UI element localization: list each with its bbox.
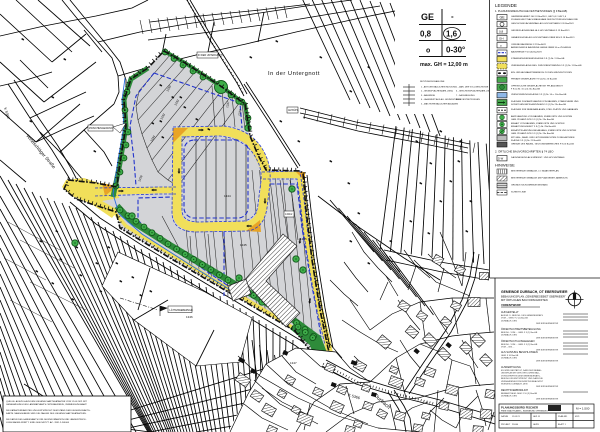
svg-text:In der Untergnott: In der Untergnott	[268, 71, 320, 77]
svg-text:PLAN-NR.: PLAN-NR.	[558, 415, 568, 418]
svg-text:VORSCHRIFTEN DEM GEMEINDERATS-: VORSCHRIFTEN DEM GEMEINDERATS-	[501, 374, 541, 377]
svg-text:max. GH = 12,00 m: max. GH = 12,00 m	[420, 62, 468, 68]
svg-text:§ 9 (1) Nr. 15 und 25a BauGB: § 9 (1) Nr. 15 und 25a BauGB	[511, 87, 540, 90]
svg-text:ANPFLANZUNG VON BÄUMEN, STANDO: ANPFLANZUNG VON BÄUMEN, STANDORTE UND SO…	[511, 115, 573, 118]
svg-text:ABWEICHENDE BAUWEISE LÄNGE ÜBE: ABWEICHENDE BAUWEISE LÄNGE ÜBER 50 m ZUL…	[511, 46, 571, 49]
svg-text:GE: GE	[500, 16, 506, 20]
svg-text:DER BÜRGERMEISTER: DER BÜRGERMEISTER	[536, 385, 559, 388]
svg-text:GRUNDFLÄCHENZAHL ALS HÖCHSTMAS: GRUNDFLÄCHENZAHL ALS HÖCHSTMASS § 19 Bau…	[511, 29, 570, 32]
svg-text:1345: 1345	[240, 243, 247, 247]
svg-text:FLÄCHEN ZUM ANPFLANZEN VON BÄU: FLÄCHEN ZUM ANPFLANZEN VON BÄUMEN, STRÄU…	[511, 100, 579, 103]
svg-text:BEKANNTGEM. GEM. § 10 (3) BauG: BEKANNTGEM. GEM. § 10 (3) BauGB	[501, 392, 538, 395]
svg-text:GEM. PFLANZLISTE § 9 (1) Nr. 2: GEM. PFLANZLISTE § 9 (1) Nr. 25a BauGB	[511, 132, 554, 135]
svg-text:DER BÜRGERMEISTER: DER BÜRGERMEISTER	[536, 348, 559, 351]
svg-text:AUFGR. D. BESCHL. DES GEMEINDE: AUFGR. D. BESCHL. DES GEMEINDERATS	[501, 314, 543, 317]
svg-text:DER BÜRGERMEISTER: DER BÜRGERMEISTER	[536, 322, 559, 325]
svg-text:ÖFFENTLICHE GRÜNFLÄCHE MIT PFL: ÖFFENTLICHE GRÜNFLÄCHE MIT PFLANZGEBOT	[511, 85, 564, 88]
svg-text:12.05.21: 12.05.21	[512, 416, 521, 418]
svg-text:0,8: 0,8	[499, 30, 504, 34]
svg-text:1345: 1345	[300, 237, 307, 241]
svg-text:D-W: D-W	[498, 157, 504, 161]
svg-text:GEMEINDE DURBACH, OT EBERSWEIE: GEMEINDE DURBACH, OT EBERSWEIER	[501, 290, 568, 294]
svg-text:AUFGESTELLT: AUFGESTELLT	[501, 311, 519, 314]
svg-text:AM BÜHL: AM BÜHL	[288, 109, 299, 112]
svg-text:GEBÄUDEHÖHE ALS HÖCHSTMASS ÜBE: GEBÄUDEHÖHE ALS HÖCHSTMASS ÜBER EFH § 18…	[511, 36, 575, 39]
svg-text:LÄTTENWEBERSGR.: LÄTTENWEBERSGR.	[170, 309, 194, 312]
svg-text:EIN- UND AUSFAHRTSBEREICH ZU D: EIN- UND AUSFAHRTSBEREICH ZU DEN GRUNDST…	[511, 71, 572, 74]
svg-text:MIT ÖRTLICHEN BAUVORSCHRIFTEN: MIT ÖRTLICHEN BAUVORSCHRIFTEN	[501, 298, 548, 302]
svg-text:BESTEHENDE GEBÄUDE, LT. KATAST: BESTEHENDE GEBÄUDE, LT. KATASTERPLAN	[511, 170, 559, 173]
svg-text:IN DER UNTERGNOTT: IN DER UNTERGNOTT	[198, 54, 224, 57]
svg-text:ZULÄSSIGKEIT NACH MASSGABE DER: ZULÄSSIGKEIT NACH MASSGABE DER NUTZUNGSS…	[511, 18, 578, 21]
svg-text:GEPR.: GEPR.	[533, 424, 540, 426]
svg-text:VERSICKERUNGSFLÄCHE § 9 (1) Nr: VERSICKERUNGSFLÄCHE § 9 (1) Nr. 14 u. 16…	[511, 93, 567, 96]
svg-text:7 - DACHNEIGUNG: 7 - DACHNEIGUNG	[456, 94, 475, 97]
svg-text:ERHALT VON BÄUMEN, STANDORTE U: ERHALT VON BÄUMEN, STANDORTE UND SORTEN	[511, 122, 565, 125]
svg-text:o: o	[426, 48, 430, 55]
svg-text:GEWERBEGEBIET GE § 8 BauNVO, G: GEWERBEGEBIET GE § 8 BauNVO, GRZ 0,8 / G…	[511, 16, 567, 18]
svg-text:FLÄCHEN FÜR NEBENANLAGEN, STEL: FLÄCHEN FÜR NEBENANLAGEN, STELLPLÄTZE UN…	[511, 108, 578, 111]
svg-text:WURDEN. DURBACH, DEN: WURDEN. DURBACH, DEN	[501, 383, 528, 386]
svg-text:-: -	[451, 12, 454, 21]
svg-text:1344: 1344	[224, 194, 231, 198]
svg-text:GRENZE DES RÄUML. GELTUNGSBERE: GRENZE DES RÄUML. GELTUNGSBEREICHES § 9 …	[511, 143, 574, 146]
svg-text:NUTZUNGSSCHABLONE: NUTZUNGSSCHABLONE	[420, 80, 445, 83]
svg-text:ALS SATZUNG BESCHLOSSEN: ALS SATZUNG BESCHLOSSEN	[501, 351, 538, 354]
svg-text:DURBACH, DEN: DURBACH, DEN	[501, 319, 517, 322]
svg-text:ES WIRD BESTÄTIGT, DASS DER BE: ES WIRD BESTÄTIGT, DASS DER BEBAU-	[501, 369, 542, 372]
svg-text:0,8: 0,8	[420, 30, 432, 39]
svg-text:GE: GE	[421, 12, 434, 22]
svg-text:BLATT 1: BLATT 1	[558, 423, 567, 426]
svg-text:PLANUNGSBÜRO FISCHER: PLANUNGSBÜRO FISCHER	[501, 405, 538, 410]
svg-text:1. PLANUNGSRECHTLICHE FESTSETZ: 1. PLANUNGSRECHTLICHE FESTSETZUNGEN (§ 9…	[495, 9, 567, 13]
svg-text:GH: GH	[499, 37, 504, 41]
svg-text:DIE KATASTERDARSTELLUNG ENTSPR: DIE KATASTERDARSTELLUNG ENTSPRICHT DEM S…	[6, 409, 91, 412]
svg-text:LUNG BADEN-WÜRTT. SIND GESCHÜT: LUNG BADEN-WÜRTT. SIND GESCHÜTZT. AZ.: 2…	[6, 421, 70, 424]
svg-text:GESCHOSSFLÄCHENZAHL ALS HÖCHST: GESCHOSSFLÄCHENZAHL ALS HÖCHSTMASS § 20 …	[511, 22, 574, 25]
svg-text:6 - GESCHOSSFLÄCHENZAHL (GFZ): 6 - GESCHOSSFLÄCHENZAHL (GFZ)	[456, 90, 492, 93]
svg-text:PRIVATE GRÜNFLÄCHE § 9 (1) Nr.: PRIVATE GRÜNFLÄCHE § 9 (1) Nr. 25 BauGB	[511, 78, 557, 81]
svg-text:1 - ZAHL DER VOLLGESCHOSSE: 1 - ZAHL DER VOLLGESCHOSSE	[456, 86, 489, 89]
svg-text:DATUM: DATUM	[501, 415, 508, 418]
svg-text:BEBAUUNGSPLAN „GEWERBEGEBIET O: BEBAUUNGSPLAN „GEWERBEGEBIET OBERWEIER“	[501, 295, 566, 299]
svg-text:1 - ART DER BAULICHEN NUTZUNG: 1 - ART DER BAULICHEN NUTZUNG	[421, 86, 457, 89]
svg-text:DACHNEIGUNG ALS MINDEST- UND H: DACHNEIGUNG ALS MINDEST- UND HÖCHSTMASS	[511, 156, 565, 159]
svg-text:UNGSPLAN MIT DEN ÖRTLICHEN BAU: UNGSPLAN MIT DEN ÖRTLICHEN BAU-	[501, 372, 540, 375]
svg-text:GENEHMIGUNG DES LANDRATSAMTS O: GENEHMIGUNG DES LANDRATSAMTS ORTENAUKREI…	[6, 403, 87, 406]
svg-text:DURBACH, DEN: DURBACH, DEN	[501, 357, 517, 360]
svg-text:5 - MAX HÖHE BAULICHER ANLAGEN: 5 - MAX HÖHE BAULICHER ANLAGEN	[421, 102, 458, 105]
svg-text:BESCHL. VOM ... GEM. § 3 (1) B: BESCHL. VOM ... GEM. § 3 (1) BauGB	[501, 332, 538, 334]
svg-text:BESTEHENDE GEBÄUDE (IM PLANGEB: BESTEHENDE GEBÄUDE (IM PLANGEBIET, ABBRU…	[511, 177, 568, 180]
svg-text:AUSFERTIGUNG: AUSFERTIGUNG	[501, 366, 521, 369]
svg-text:2. ÖRTLICHE BAUVORSCHRIFTEN §: 2. ÖRTLICHE BAUVORSCHRIFTEN § 74 LBO	[495, 150, 554, 154]
svg-text:1344/2: 1344/2	[285, 213, 293, 216]
svg-text:GRUNDSTÜCKSGRENZE BESTAND: GRUNDSTÜCKSGRENZE BESTAND	[511, 184, 548, 187]
svg-text:ÖFFENTLICH AUSGELEGEN: ÖFFENTLICH AUSGELEGEN	[501, 340, 535, 343]
svg-text:DIE DATEN DES LANDESAMTS FÜR G: DIE DATEN DES LANDESAMTS FÜR GEOINFORMAT…	[6, 418, 87, 421]
svg-text:GEM. § 10 BauGB: GEM. § 10 BauGB	[501, 355, 519, 357]
svg-text:MIT GEH-, FAHR- UND LEITUNGSRE: MIT GEH-, FAHR- UND LEITUNGSRECHTEN ZU B…	[511, 136, 575, 139]
svg-text:HINWEISE: HINWEISE	[495, 163, 515, 168]
svg-text:1346: 1346	[186, 315, 193, 319]
svg-text:DURBACH, DEN: DURBACH, DEN	[501, 395, 517, 398]
svg-text:STRASSENVERKEHRSFLÄCHE § 9 (1): STRASSENVERKEHRSFLÄCHE § 9 (1) Nr. 11 Ba…	[511, 57, 565, 60]
svg-text:SONSTIGEN BEPFLANZUNGEN § 9 (1: SONSTIGEN BEPFLANZUNGEN § 9 (1) Nr. 25a …	[511, 103, 566, 106]
svg-text:FREIE STADTPLANER + INGENIEURE: FREIE STADTPLANER + INGENIEURE, OFFENBUR…	[501, 410, 548, 413]
svg-text:BESCHLUSS ENTSPRICHT UND DASS: BESCHLUSS ENTSPRICHT UND DASS DIE	[501, 377, 543, 380]
svg-text:RECHTSVERBINDLICH: RECHTSVERBINDLICH	[501, 389, 528, 392]
svg-text:LEGENDE: LEGENDE	[495, 3, 517, 8]
svg-text:ALLE FESTSETZUNGEN: ALLE FESTSETZUNGEN	[456, 98, 480, 101]
svg-text:0-30°: 0-30°	[446, 46, 465, 55]
svg-text:GEZ. FI: GEZ. FI	[533, 416, 540, 418]
svg-text:ERHALTUNGSGEBOT § 9 (1) Nr. 25: ERHALTUNGSGEBOT § 9 (1) Nr. 25b BauGB	[511, 125, 556, 128]
svg-text:FLÄCHE § 9 (1) Nr. 21 BauGB: FLÄCHE § 9 (1) Nr. 21 BauGB	[511, 139, 541, 142]
svg-text:GEM. PFLANZLISTE § 9 (1) Nr. 2: GEM. PFLANZLISTE § 9 (1) Nr. 25a BauGB	[511, 118, 554, 121]
svg-text:ZWISCHENGEWANN: ZWISCHENGEWANN	[89, 127, 113, 130]
svg-text:BAUGRENZE § 23 (3) BauNVO: BAUGRENZE § 23 (3) BauNVO	[511, 51, 542, 54]
svg-text:DER BÜRGERMEISTER: DER BÜRGERMEISTER	[536, 359, 559, 362]
svg-text:DER BÜRGERMEISTER: DER BÜRGERMEISTER	[536, 397, 559, 400]
svg-text:VOM ... BIS ...: VOM ... BIS ...	[501, 347, 515, 349]
svg-text:OFFENE BAUWEISE § 22 BauNVO: OFFENE BAUWEISE § 22 BauNVO	[511, 43, 546, 46]
svg-text:ERSATZPFLANZUNG BEI ABGANG, ST: ERSATZPFLANZUNG BEI ABGANG, STANDORTE UN…	[511, 129, 577, 132]
svg-text:VERKEHRSFLÄCHE BES. ZWECKBESTI: VERKEHRSFLÄCHE BES. ZWECKBESTIMMUNG § 9 …	[511, 64, 582, 67]
svg-text:DER BÜRGERMEISTER: DER BÜRGERMEISTER	[536, 336, 559, 339]
svg-text:DURBACH, DEN: DURBACH, DEN	[501, 334, 517, 337]
svg-text:VOM ... GEM. § 2 (1) BauGB: VOM ... GEM. § 2 (1) BauGB	[501, 318, 528, 320]
svg-text:PROJEKT: PROJEKT	[501, 424, 511, 426]
svg-text:ÖFFENTLICHKEITSBETEILIGUNG: ÖFFENTLICHKEITSBETEILIGUNG	[501, 328, 541, 331]
svg-text:SCHNITTLINIE: SCHNITTLINIE	[511, 192, 526, 194]
svg-text:21/004: 21/004	[512, 424, 519, 426]
svg-text:1347: 1347	[290, 361, 297, 365]
svg-text:BESCHL. VOM ... GEM. § 3 (2) B: BESCHL. VOM ... GEM. § 3 (2) BauGB	[501, 344, 538, 346]
svg-text:QUELLE: AUSZUG AUS DEM LIEGENS: QUELLE: AUSZUG AUS DEM LIEGENSCHAFTSKATA…	[6, 400, 88, 403]
svg-text:VORENTWURF: VORENTWURF	[501, 303, 521, 307]
svg-text:VERFAHRENSVORSCHRIFTEN BEACHTE: VERFAHRENSVORSCHRIFTEN BEACHTET	[501, 380, 544, 383]
svg-text:2 - GRUNDFLÄCHENZAHL (GRZ): 2 - GRUNDFLÄCHENZAHL (GRZ)	[421, 90, 453, 93]
svg-text:M = 1:500: M = 1:500	[576, 407, 590, 411]
svg-text:1,6: 1,6	[446, 30, 458, 39]
svg-text:KARTE. MASSGEBEND SIND DIE ZAH: KARTE. MASSGEBEND SIND DIE ZAHLEN DES LI…	[6, 412, 87, 415]
svg-text:3 - BAUWEISE: 3 - BAUWEISE	[421, 94, 436, 97]
